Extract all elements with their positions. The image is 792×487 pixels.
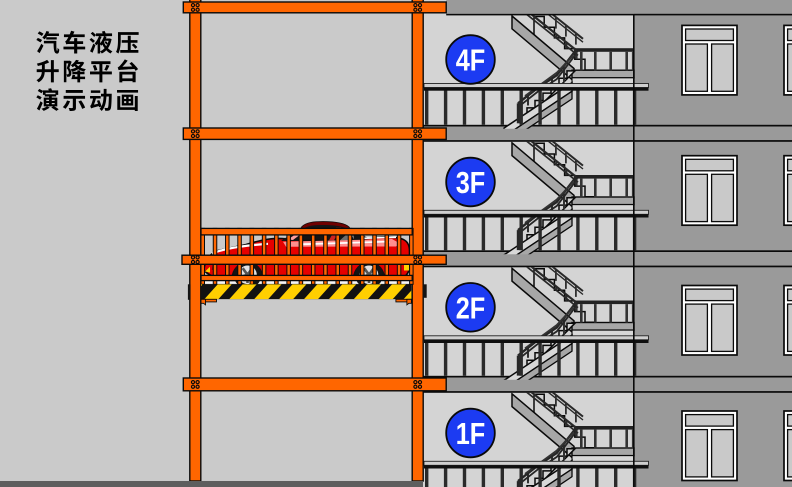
svg-text:3F: 3F [456, 165, 486, 200]
svg-text:2F: 2F [456, 291, 486, 326]
svg-text:4F: 4F [456, 43, 486, 78]
svg-text:1F: 1F [456, 416, 486, 451]
